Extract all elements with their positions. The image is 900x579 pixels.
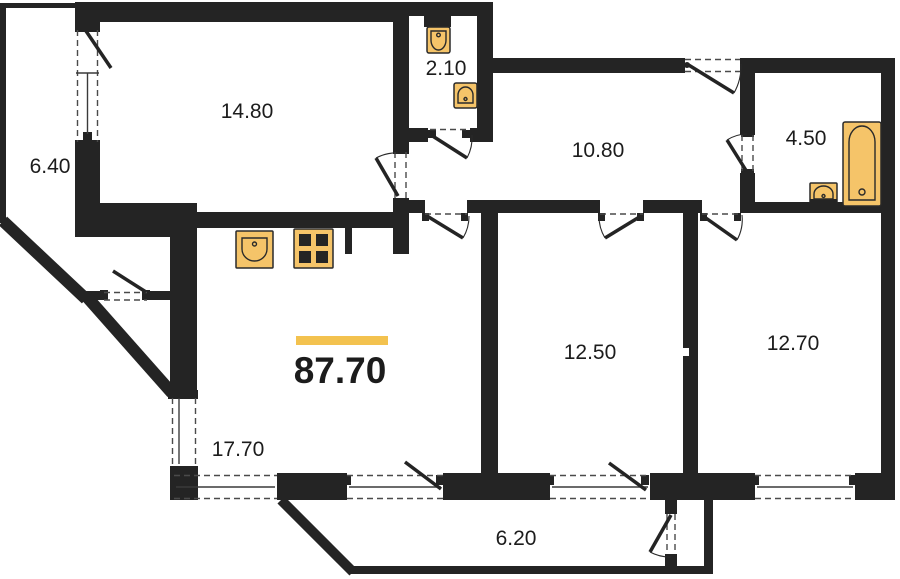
kitchen-sink-icon: [236, 231, 273, 268]
area-label-balcony-bottom: 6.20: [496, 527, 537, 550]
bathtub-icon: [843, 122, 881, 206]
total-area-label: 87.70: [294, 350, 387, 391]
area-label-bedroom-1: 12.50: [564, 341, 617, 364]
area-label-room-top-left: 14.80: [221, 100, 274, 123]
area-label-living-room: 17.70: [212, 438, 265, 461]
bedroom-1-door: [599, 214, 643, 238]
window-bedroom-2: [755, 476, 855, 499]
stove-icon: [294, 229, 333, 268]
wc-sink-icon: [454, 83, 477, 108]
window-balcony-left-south: [104, 271, 147, 300]
window-living-right: [347, 462, 443, 499]
window-balcony-left: [76, 30, 111, 142]
toilet-icon: [427, 27, 450, 53]
area-label-balcony-left: 6.40: [30, 155, 71, 178]
walls: [0, 2, 895, 574]
room-top-left-door: [376, 152, 406, 198]
window-sw-vertical: [173, 398, 196, 466]
bathroom-sink-icon: [810, 183, 837, 204]
area-label-bedroom-2: 12.70: [767, 332, 820, 355]
floor-plan-canvas: 6.40 14.80 2.10 10.80 4.50 12.50 12.70 1…: [0, 0, 900, 579]
entrance-door: [684, 60, 741, 94]
area-label-bathroom: 4.50: [786, 127, 827, 150]
balcony-partition-door: [650, 514, 675, 557]
total-area-accent-bar: [296, 336, 388, 345]
area-label-wc: 2.10: [426, 57, 467, 80]
window-bedroom-1: [550, 463, 650, 499]
floor-plan: 6.40 14.80 2.10 10.80 4.50 12.50 12.70 1…: [0, 0, 900, 579]
bathroom-door: [727, 134, 753, 173]
area-label-hallway: 10.80: [572, 139, 625, 162]
